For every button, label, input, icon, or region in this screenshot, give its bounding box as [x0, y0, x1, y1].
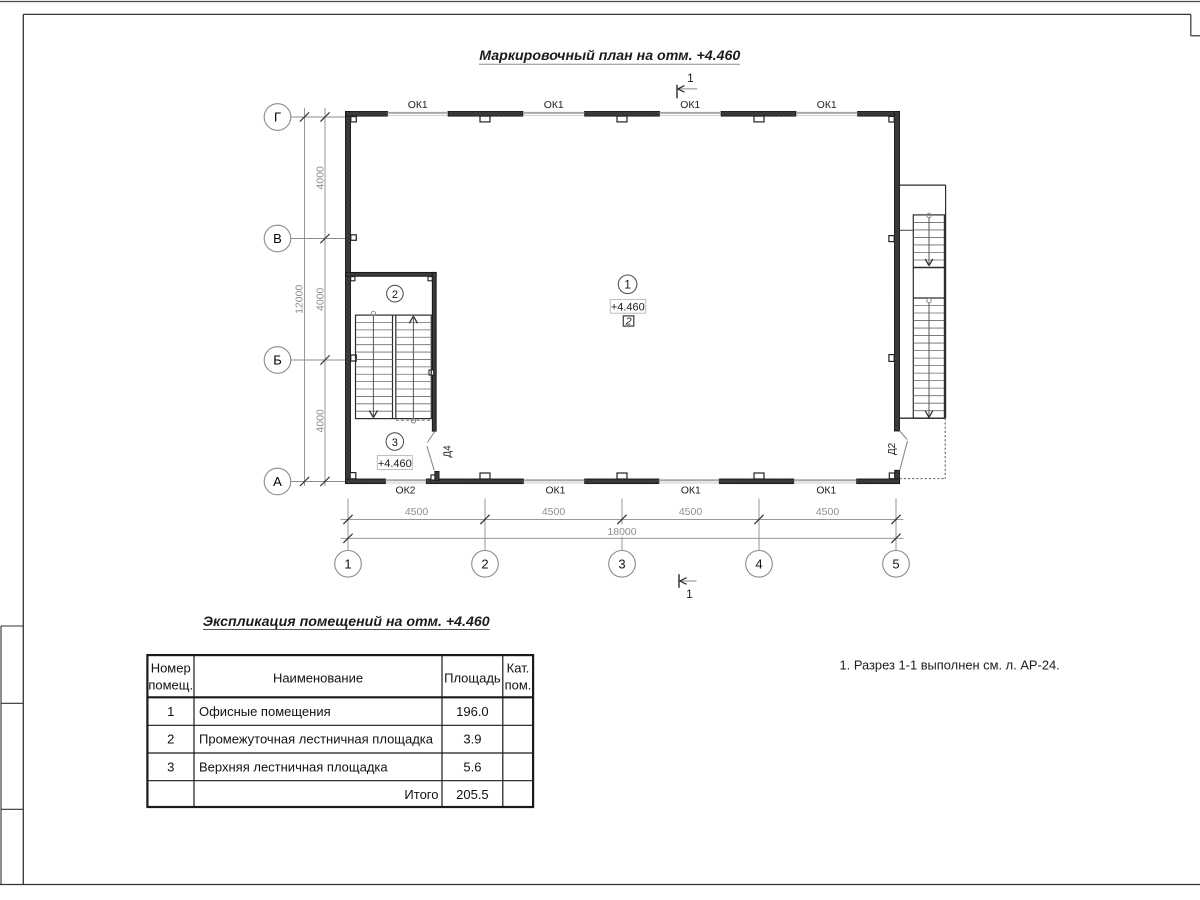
svg-text:Наименование: Наименование: [273, 671, 363, 686]
svg-text:Номер: Номер: [151, 661, 191, 676]
svg-text:Д4: Д4: [443, 445, 454, 458]
svg-text:ОК1: ОК1: [544, 100, 564, 111]
svg-text:Б: Б: [273, 353, 282, 368]
svg-text:3.9: 3.9: [463, 732, 481, 747]
svg-text:+4.460: +4.460: [611, 302, 645, 314]
svg-text:ОК1: ОК1: [408, 100, 428, 111]
svg-text:2: 2: [481, 556, 488, 571]
svg-text:4500: 4500: [405, 506, 429, 518]
svg-text:ОК1: ОК1: [680, 100, 700, 111]
svg-text:3: 3: [167, 759, 174, 774]
svg-text:1. Разрез 1-1 выполнен см. л.: 1. Разрез 1-1 выполнен см. л. АР-24.: [840, 658, 1060, 673]
svg-text:2: 2: [167, 732, 174, 747]
svg-text:1: 1: [344, 556, 351, 571]
svg-text:Площадь: Площадь: [444, 671, 501, 686]
svg-text:+4.460: +4.460: [378, 458, 412, 470]
svg-text:ОК1: ОК1: [817, 100, 837, 111]
svg-text:Кат.: Кат.: [507, 661, 530, 676]
svg-text:Маркировочный план на отм. +4.: Маркировочный план на отм. +4.460: [479, 48, 740, 64]
svg-text:2: 2: [392, 289, 398, 301]
svg-text:4000: 4000: [314, 409, 326, 433]
svg-text:205.5: 205.5: [456, 787, 489, 802]
svg-text:1: 1: [686, 589, 692, 601]
svg-text:18000: 18000: [607, 526, 636, 538]
svg-text:Итого: Итого: [404, 787, 438, 802]
svg-text:1: 1: [687, 73, 693, 85]
svg-text:3: 3: [392, 437, 398, 449]
svg-text:ОК2: ОК2: [396, 486, 416, 497]
svg-text:Промежуточная лестничная площа: Промежуточная лестничная площадка: [199, 732, 434, 747]
svg-text:12000: 12000: [293, 285, 305, 314]
svg-text:4500: 4500: [542, 506, 566, 518]
svg-text:Верхняя лестничная площадка: Верхняя лестничная площадка: [199, 759, 388, 774]
svg-text:4000: 4000: [314, 166, 326, 190]
svg-text:А: А: [273, 474, 282, 489]
svg-text:пом.: пом.: [505, 678, 532, 693]
svg-text:196.0: 196.0: [456, 704, 489, 719]
svg-text:1: 1: [167, 704, 174, 719]
svg-text:3: 3: [618, 556, 625, 571]
svg-text:5.6: 5.6: [463, 759, 481, 774]
svg-text:Д2: Д2: [887, 442, 898, 455]
svg-text:Экспликация помещений на отм.: Экспликация помещений на отм. +4.460: [203, 614, 490, 630]
svg-text:4500: 4500: [679, 506, 703, 518]
svg-text:4000: 4000: [314, 287, 326, 311]
svg-text:1: 1: [624, 280, 630, 292]
svg-text:В: В: [273, 231, 282, 246]
svg-text:ОК1: ОК1: [681, 486, 701, 497]
svg-text:ОК1: ОК1: [816, 486, 836, 497]
svg-text:4: 4: [755, 556, 762, 571]
svg-text:Офисные помещения: Офисные помещения: [199, 704, 331, 719]
svg-text:5: 5: [892, 556, 899, 571]
svg-text:2: 2: [625, 316, 632, 328]
svg-text:помещ.: помещ.: [148, 678, 193, 693]
svg-text:ОК1: ОК1: [545, 486, 565, 497]
svg-text:Г: Г: [274, 110, 281, 125]
svg-text:4500: 4500: [816, 506, 840, 518]
